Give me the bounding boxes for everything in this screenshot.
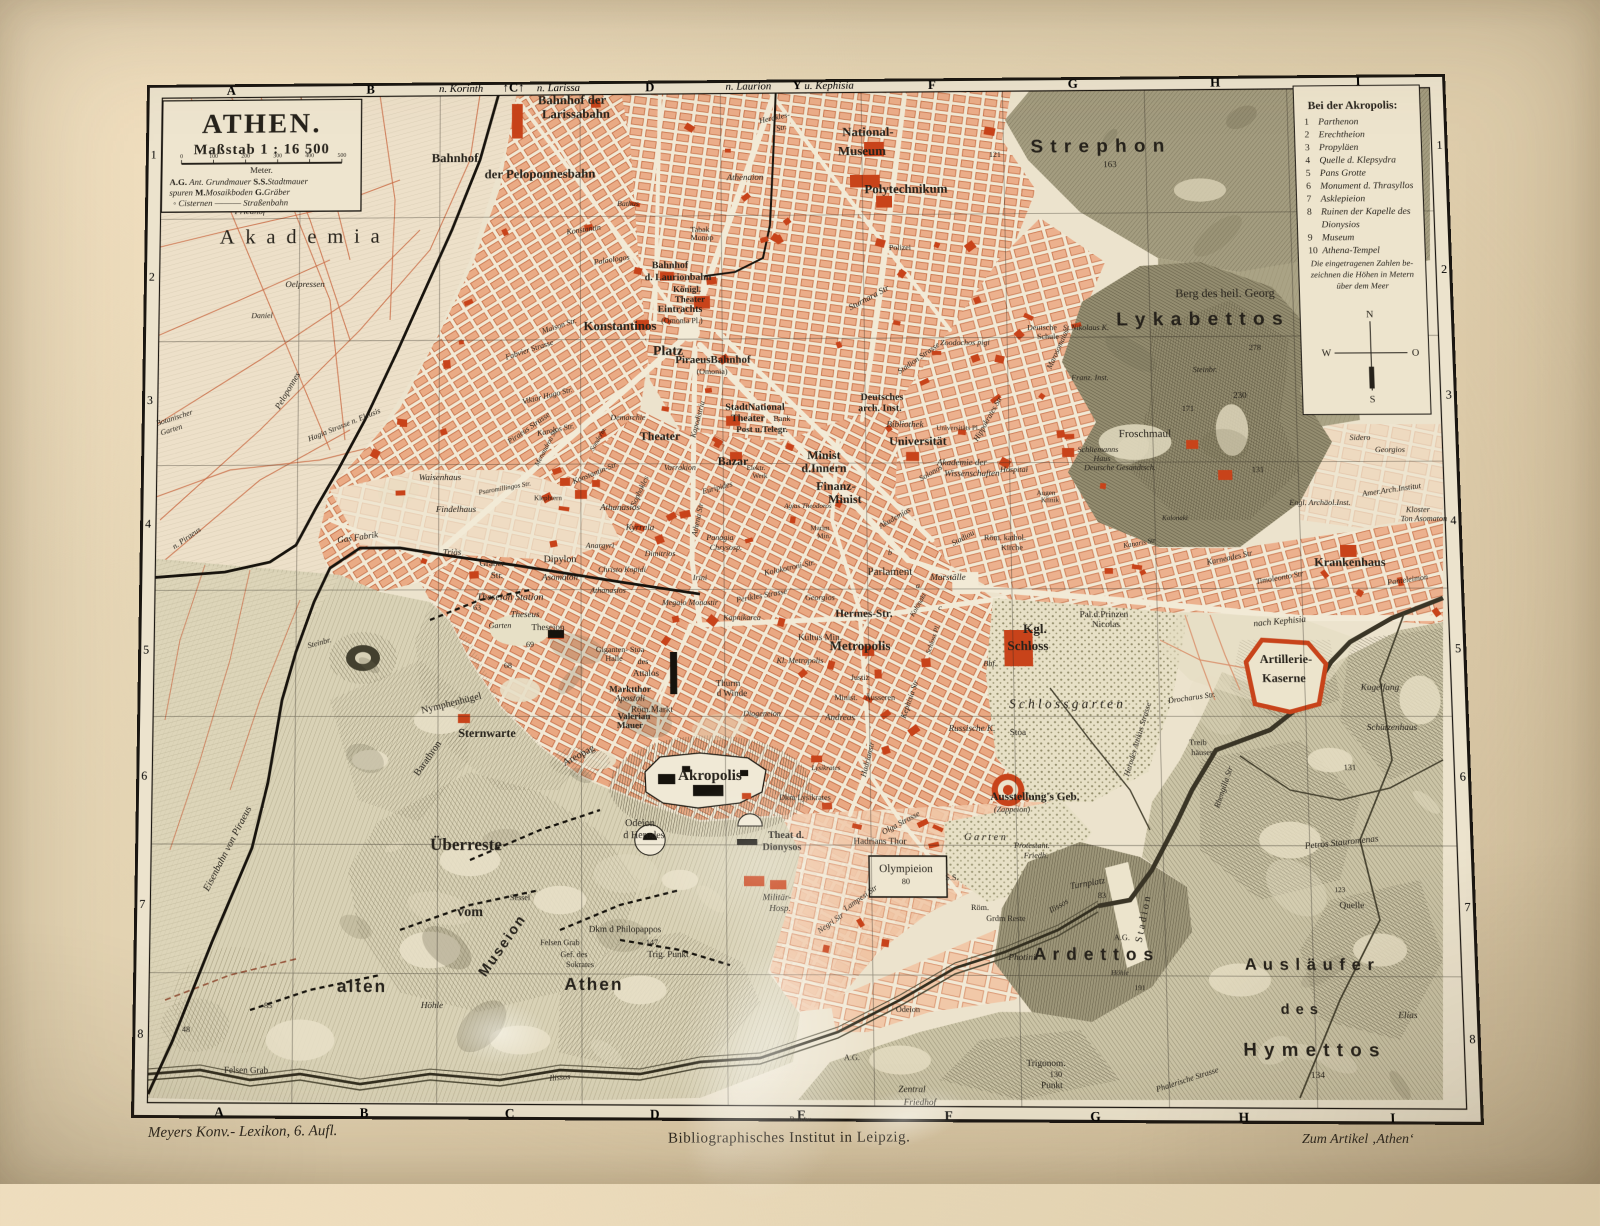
svg-text:171: 171	[1182, 404, 1195, 413]
svg-text:H y m e t t o s: H y m e t t o s	[1243, 1038, 1381, 1060]
svg-text:Pal.d.Prinzen: Pal.d.Prinzen	[1079, 609, 1129, 620]
svg-text:Anargyri: Anargyri	[585, 541, 615, 550]
svg-text:10: 10	[1308, 245, 1318, 255]
svg-text:St.Nikolaus K.: St.Nikolaus K.	[1063, 323, 1109, 332]
svg-text:5: 5	[1306, 168, 1312, 178]
svg-text:Photini: Photini	[1007, 951, 1036, 962]
svg-text:Trig. Punkt: Trig. Punkt	[647, 948, 689, 959]
svg-text:Deutsche: Deutsche	[1027, 323, 1058, 332]
svg-text:Quelle d. Klepsydra: Quelle d. Klepsydra	[1319, 154, 1396, 165]
svg-text:Schützenhaus: Schützenhaus	[1367, 721, 1418, 732]
svg-text:S t r e p h o n: S t r e p h o n	[1030, 135, 1165, 156]
svg-text:alten: alten	[337, 977, 387, 996]
svg-text:Christo Kopidi: Christo Kopidi	[598, 565, 646, 574]
svg-text:d.Innern: d.Innern	[801, 463, 847, 476]
svg-text:5: 5	[143, 644, 149, 656]
svg-text:Klephtern: Klephtern	[534, 495, 562, 502]
svg-text:Franz. Inst.: Franz. Inst.	[1070, 373, 1109, 382]
svg-text:(Omonia): (Omonia)	[697, 367, 728, 376]
svg-text:Findelhaus: Findelhaus	[435, 504, 477, 514]
svg-text:häuser: häuser	[1191, 748, 1213, 758]
svg-text:Engl. Archäol.Inst.: Engl. Archäol.Inst.	[1288, 498, 1351, 508]
svg-text:Bibliothek: Bibliothek	[886, 419, 923, 429]
svg-text:Bathus: Bathus	[617, 199, 639, 208]
svg-text:200: 200	[241, 154, 250, 160]
svg-text:0: 0	[180, 154, 183, 160]
svg-text:Russische K.: Russische K.	[947, 723, 995, 734]
svg-text:arch. Inst.: arch. Inst.	[858, 403, 902, 415]
svg-text:Überreste: Überreste	[430, 834, 502, 854]
svg-text:Minist: Minist	[828, 494, 862, 507]
svg-text:Apostoli: Apostoli	[614, 693, 646, 704]
svg-text:(Zappeion): (Zappeion)	[994, 805, 1031, 815]
svg-text:Röm. kathol.: Röm. kathol.	[984, 533, 1026, 542]
svg-text:Höhle: Höhle	[1110, 970, 1129, 978]
svg-text:Nicolas: Nicolas	[1092, 619, 1121, 630]
svg-text:n. Laurion: n. Laurion	[725, 81, 771, 92]
svg-text:Krankenhaus: Krankenhaus	[1314, 556, 1386, 569]
svg-text:Polizei: Polizei	[889, 243, 911, 252]
svg-text:131: 131	[1252, 465, 1265, 474]
svg-text:Daniel: Daniel	[250, 311, 272, 320]
svg-text:Dionysios: Dionysios	[1320, 219, 1360, 229]
svg-text:Sokrates: Sokrates	[566, 960, 594, 970]
svg-text:Museum: Museum	[838, 144, 887, 158]
svg-text:Universitäts Pl.: Universitäts Pl.	[936, 425, 980, 432]
svg-text:Lysikrates: Lysikrates	[810, 765, 840, 772]
svg-text:Parthenon: Parthenon	[1317, 116, 1359, 126]
svg-text:Pulver: Pulver	[788, 1114, 811, 1124]
svg-text:Hospital: Hospital	[999, 465, 1028, 474]
svg-text:Waisenhaus: Waisenhaus	[419, 472, 462, 482]
svg-text:Höhle: Höhle	[420, 999, 444, 1010]
svg-text:Megalo Monastir: Megalo Monastir	[661, 598, 718, 607]
svg-text:131: 131	[1344, 763, 1357, 773]
svg-text:1: 1	[151, 149, 157, 161]
svg-text:Garten: Garten	[489, 621, 512, 630]
svg-text:68: 68	[504, 661, 512, 670]
svg-text:D: D	[650, 1107, 660, 1122]
svg-text:Propyläen: Propyläen	[1318, 142, 1359, 152]
svg-text:Georgios: Georgios	[805, 593, 835, 602]
svg-text:2: 2	[1441, 264, 1448, 276]
svg-text:Militär-: Militär-	[761, 891, 791, 902]
svg-text:48: 48	[182, 1024, 190, 1034]
svg-text:Str.: Str.	[491, 570, 503, 580]
svg-text:Stoa: Stoa	[1010, 727, 1027, 738]
svg-text:Trigonom.: Trigonom.	[1026, 1057, 1065, 1068]
svg-text:500: 500	[337, 153, 346, 159]
svg-text:vom: vom	[457, 903, 483, 919]
svg-text:spuren M.Mosaikboden G.Gräber: spuren M.Mosaikboden G.Gräber	[169, 187, 290, 198]
svg-text:121: 121	[989, 150, 1001, 159]
svg-text:b: b	[888, 548, 892, 557]
svg-text:◦ Cisternen ——— Straßenbahn: ◦ Cisternen ——— Straßenbahn	[173, 197, 288, 208]
svg-text:Kirche: Kirche	[1001, 543, 1024, 552]
svg-text:6: 6	[1460, 771, 1467, 784]
svg-text:H: H	[1238, 1110, 1249, 1125]
svg-text:Ton Asomaton: Ton Asomaton	[1401, 514, 1448, 524]
svg-text:Wissenschaften: Wissenschaften	[944, 468, 999, 479]
svg-text:ATHEN.: ATHEN.	[202, 108, 322, 140]
svg-text:Varrakion: Varrakion	[664, 463, 696, 472]
svg-text:6: 6	[1306, 181, 1312, 191]
svg-text:A.G.: A.G.	[1114, 932, 1130, 942]
svg-text:Panagia: Panagia	[705, 533, 733, 542]
svg-text:Marställe: Marställe	[929, 572, 966, 583]
svg-text:2: 2	[1304, 129, 1310, 139]
svg-text:National-: National-	[842, 125, 894, 139]
svg-text:Agias Theodoros: Agias Theodoros	[783, 503, 832, 510]
svg-text:Polytechnikum: Polytechnikum	[864, 182, 948, 197]
svg-text:A: A	[214, 1105, 224, 1120]
svg-text:Schliemanns: Schliemanns	[1077, 445, 1118, 454]
svg-text:u. Kephisia: u. Kephisia	[804, 81, 854, 92]
svg-text:Universität: Universität	[889, 436, 947, 449]
svg-text:Felsen Grab: Felsen Grab	[224, 1064, 268, 1075]
svg-text:I: I	[1390, 1110, 1396, 1125]
svg-text:Museum: Museum	[1321, 232, 1355, 242]
svg-text:F: F	[928, 78, 936, 92]
svg-text:Bank: Bank	[773, 414, 790, 423]
svg-text:H: H	[1210, 75, 1221, 89]
svg-text:4: 4	[145, 518, 151, 530]
svg-text:A.G. Ant. Grundmauer S.S.Stadt: A.G. Ant. Grundmauer S.S.Stadtmauer	[169, 176, 308, 187]
svg-text:Akademie der: Akademie der	[936, 457, 988, 468]
svg-text:Schloss: Schloss	[1007, 638, 1048, 653]
svg-text:7: 7	[1306, 194, 1312, 204]
svg-text:Sternwarte: Sternwarte	[458, 728, 516, 741]
svg-text:Deutsches: Deutsches	[860, 392, 903, 403]
svg-text:Friedh.: Friedh.	[1023, 851, 1049, 861]
svg-text:Mauer: Mauer	[617, 720, 643, 731]
svg-text:Zentral: Zentral	[898, 1083, 926, 1094]
svg-text:Schule: Schule	[1037, 332, 1060, 341]
svg-text:↑C↑: ↑C↑	[503, 80, 525, 94]
svg-text:1: 1	[1436, 140, 1443, 152]
svg-text:Steinbr.: Steinbr.	[1193, 365, 1218, 374]
svg-text:Minist: Minist	[807, 450, 841, 463]
svg-text:Athena-Tempel: Athena-Tempel	[1321, 245, 1380, 256]
svg-text:C: C	[505, 1106, 515, 1121]
svg-text:Justiz: Justiz	[851, 673, 870, 682]
svg-text:zeichnen die Höhen in Metern: zeichnen die Höhen in Metern	[1310, 270, 1414, 280]
svg-text:Kultus Min.: Kultus Min.	[798, 632, 842, 643]
svg-text:69: 69	[526, 640, 534, 649]
svg-text:6: 6	[141, 770, 147, 783]
svg-text:Bhf.: Bhf.	[983, 659, 997, 668]
svg-text:Bazar: Bazar	[718, 456, 749, 468]
svg-text:Demarchie: Demarchie	[609, 413, 646, 422]
svg-text:123: 123	[1334, 887, 1346, 895]
svg-text:7: 7	[139, 898, 145, 911]
svg-text:Akademia: Akademia	[220, 225, 391, 248]
svg-text:G: G	[1090, 1109, 1101, 1124]
svg-text:a: a	[916, 581, 920, 590]
svg-text:A.G.: A.G.	[844, 1052, 860, 1062]
svg-text:Königl.: Königl.	[673, 284, 701, 294]
svg-text:Odeion: Odeion	[625, 818, 655, 830]
svg-text:O: O	[1412, 347, 1420, 358]
svg-text:Monument d. Thrasyllos: Monument d. Thrasyllos	[1319, 180, 1414, 191]
svg-text:Parlament: Parlament	[867, 567, 912, 579]
svg-text:1: 1	[1304, 117, 1309, 127]
svg-text:Meter.: Meter.	[250, 165, 273, 175]
svg-text:A r d e t t o s: A r d e t t o s	[1033, 945, 1154, 965]
svg-text:Sidero: Sidero	[1349, 433, 1370, 442]
svg-text:Froschmaul: Froschmaul	[1119, 429, 1172, 441]
svg-text:Hadrians Thor: Hadrians Thor	[853, 835, 906, 846]
svg-text:Konstantinos: Konstantinos	[583, 319, 656, 334]
svg-text:Bahnhof: Bahnhof	[432, 151, 480, 165]
svg-text:Marim: Marim	[810, 525, 830, 532]
svg-text:Elektr.: Elektr.	[747, 465, 766, 472]
svg-text:Theater: Theater	[675, 294, 705, 304]
svg-text:(Omonia Pl.): (Omonia Pl.)	[661, 316, 703, 325]
svg-text:Triàs: Triàs	[443, 547, 462, 557]
svg-text:Theat d.: Theat d.	[768, 829, 804, 841]
svg-text:Kgl.: Kgl.	[1023, 621, 1047, 636]
svg-text:Treib: Treib	[1189, 738, 1207, 748]
svg-text:2: 2	[149, 272, 155, 284]
svg-text:134: 134	[1311, 1069, 1326, 1080]
svg-text:Berg des heil. Georg: Berg des heil. Georg	[1175, 287, 1275, 300]
svg-text:Y: Y	[792, 78, 801, 92]
svg-text:Akropolis: Akropolis	[678, 767, 742, 784]
svg-text:3: 3	[147, 395, 153, 407]
svg-text:Finanz-: Finanz-	[816, 481, 856, 494]
svg-text:F: F	[944, 1108, 952, 1123]
svg-text:Kugelfang: Kugelfang	[1359, 682, 1400, 693]
svg-text:d. Laurionbahn: d. Laurionbahn	[645, 272, 712, 284]
svg-text:Grdm Reste: Grdm Reste	[986, 913, 1026, 923]
svg-text:4: 4	[1450, 515, 1457, 528]
svg-text:Dkm Lysikrates: Dkm Lysikrates	[779, 793, 831, 803]
svg-text:Zoodochos pigi: Zoodochos pigi	[940, 338, 990, 347]
svg-text:Dimitrios: Dimitrios	[644, 549, 676, 558]
svg-text:Athenaion: Athenaion	[726, 172, 764, 182]
svg-text:Andreas: Andreas	[824, 712, 856, 723]
svg-text:Asklepieion: Asklepieion	[1319, 193, 1365, 203]
svg-text:Thurm: Thurm	[716, 678, 741, 689]
svg-text:Klinik: Klinik	[1041, 497, 1060, 504]
svg-text:Ilissos: Ilissos	[548, 1072, 571, 1084]
svg-text:7: 7	[1464, 901, 1471, 914]
svg-text:G a r t e n: G a r t e n	[964, 831, 1006, 843]
svg-text:d e s: d e s	[1280, 1001, 1319, 1017]
svg-text:Theater: Theater	[640, 431, 681, 443]
svg-text:S c h l o s s g a r t e n: S c h l o s s g a r t e n	[1009, 696, 1123, 711]
svg-text:3: 3	[1305, 142, 1311, 152]
svg-text:278: 278	[1249, 343, 1262, 352]
svg-text:Kyrrala: Kyrrala	[625, 522, 655, 532]
svg-text:100: 100	[209, 154, 218, 160]
svg-text:A: A	[227, 84, 236, 98]
svg-text:Dipylon: Dipylon	[544, 554, 577, 565]
svg-text:des: des	[638, 657, 649, 666]
svg-text:Dkm d Philopappos: Dkm d Philopappos	[589, 923, 662, 934]
svg-text:S.S.: S.S.	[945, 873, 958, 883]
svg-text:Punkt: Punkt	[1041, 1079, 1064, 1090]
svg-text:Odeion: Odeion	[896, 1004, 920, 1014]
svg-text:147: 147	[646, 937, 658, 947]
svg-text:80: 80	[902, 877, 910, 887]
svg-text:163: 163	[1103, 159, 1117, 169]
svg-text:Röm.: Röm.	[971, 903, 989, 913]
svg-text:5: 5	[1455, 643, 1462, 656]
svg-text:Magazin: Magazin	[787, 1124, 817, 1125]
svg-text:D: D	[645, 80, 654, 94]
svg-text:Sessel: Sessel	[510, 893, 530, 903]
svg-text:Deutsche Gesandtsch.: Deutsche Gesandtsch.	[1083, 463, 1156, 473]
svg-text:Felsen Grab: Felsen Grab	[540, 938, 580, 948]
svg-text:Georgios: Georgios	[1375, 445, 1405, 454]
svg-text:W: W	[1322, 348, 1333, 359]
svg-text:Friedhof: Friedhof	[903, 1096, 938, 1107]
svg-text:Die eingetragenen Zahlen be-: Die eingetragenen Zahlen be-	[1310, 258, 1414, 268]
svg-text:Werk: Werk	[753, 473, 769, 480]
svg-text:Attalos: Attalos	[633, 668, 660, 678]
svg-text:der Peloponnesbahn: der Peloponnesbahn	[485, 166, 596, 181]
svg-text:Erechtheion: Erechtheion	[1317, 129, 1365, 139]
svg-text:Kaserne: Kaserne	[1262, 673, 1306, 686]
svg-text:Kapnikarea: Kapnikarea	[722, 613, 761, 622]
svg-text:63: 63	[473, 603, 481, 612]
svg-text:Ruinen der Kapelle des: Ruinen der Kapelle des	[1320, 206, 1411, 217]
svg-text:Bahnhof der: Bahnhof der	[538, 93, 607, 108]
svg-text:Pans Grotte: Pans Grotte	[1319, 167, 1366, 178]
svg-text:Kolonaki: Kolonaki	[1161, 515, 1188, 522]
svg-text:Theater: Theater	[731, 413, 766, 424]
svg-text:Theseion: Theseion	[531, 622, 565, 632]
svg-text:300: 300	[273, 153, 282, 159]
svg-text:Theseus: Theseus	[511, 609, 541, 619]
svg-text:Halle: Halle	[605, 654, 623, 663]
svg-text:StadtNational: StadtNational	[725, 402, 785, 414]
svg-text:Minist.: Minist.	[834, 693, 857, 702]
svg-text:A u s l ä u f e r: A u s l ä u f e r	[1245, 956, 1376, 975]
svg-text:85: 85	[264, 1001, 272, 1011]
svg-text:B: B	[366, 83, 375, 97]
svg-text:191: 191	[1135, 985, 1146, 993]
svg-text:Gef. des: Gef. des	[560, 949, 587, 959]
svg-text:Min.: Min.	[817, 533, 831, 540]
svg-text:PiraeusBahnhof: PiraeusBahnhof	[675, 355, 751, 367]
svg-text:Post u.Telegr.: Post u.Telegr.	[736, 424, 788, 434]
svg-text:Äusseren: Äusseren	[865, 693, 895, 702]
svg-text:130: 130	[1050, 1069, 1063, 1079]
svg-text:Quelle: Quelle	[1339, 899, 1364, 910]
svg-text:G: G	[1068, 77, 1079, 91]
svg-text:Protestant.: Protestant.	[1013, 840, 1050, 850]
svg-text:Kl. Metropolis: Kl. Metropolis	[775, 656, 823, 665]
svg-text:83: 83	[1098, 890, 1107, 900]
svg-text:Ausstellung's Geb.: Ausstellung's Geb.	[990, 791, 1080, 803]
svg-text:Hermes-Str.: Hermes-Str.	[835, 609, 893, 621]
svg-text:3: 3	[1446, 389, 1453, 401]
svg-text:n. Korinth: n. Korinth	[439, 84, 483, 95]
svg-text:Gräber: Gräber	[480, 558, 505, 568]
svg-text:400: 400	[305, 153, 314, 159]
svg-text:Bahnhof: Bahnhof	[652, 260, 689, 271]
svg-text:Haus: Haus	[1092, 454, 1110, 463]
svg-text:B: B	[360, 1105, 369, 1120]
svg-text:Irini: Irini	[692, 573, 707, 582]
svg-text:Artillerie-: Artillerie-	[1260, 653, 1313, 666]
svg-text:Dionysos: Dionysos	[762, 842, 801, 854]
svg-text:Bei der Akropolis:: Bei der Akropolis:	[1307, 99, 1397, 112]
svg-text:4: 4	[1305, 155, 1311, 165]
svg-text:Chrysosp.: Chrysosp.	[710, 543, 742, 552]
svg-text:8: 8	[137, 1028, 144, 1041]
svg-text:Hosp.: Hosp.	[768, 902, 791, 913]
svg-text:Larissabahn: Larissabahn	[542, 107, 610, 122]
svg-text:Asomaton: Asomaton	[541, 572, 578, 582]
svg-text:über dem Meer: über dem Meer	[1336, 281, 1389, 291]
svg-text:Athanasios: Athanasios	[589, 586, 626, 595]
svg-text:Theseion Station: Theseion Station	[477, 592, 544, 604]
svg-text:Athen: Athen	[564, 975, 623, 995]
svg-text:8: 8	[1469, 1033, 1476, 1046]
svg-text:d Herodes: d Herodes	[623, 830, 665, 842]
svg-text:L y k a b e t t o s: L y k a b e t t o s	[1116, 308, 1284, 329]
svg-text:Oelpressen: Oelpressen	[285, 279, 324, 289]
svg-text:S: S	[1370, 394, 1376, 405]
svg-text:230: 230	[1233, 390, 1247, 400]
svg-text:Olympieion: Olympieion	[879, 863, 934, 875]
svg-text:8: 8	[1307, 206, 1313, 216]
svg-text:Eintrachts: Eintrachts	[658, 304, 703, 315]
svg-text:9: 9	[1308, 232, 1314, 242]
svg-text:Elias: Elias	[1397, 1009, 1418, 1020]
svg-text:Monop: Monop	[691, 233, 714, 242]
svg-text:d Winde: d Winde	[717, 688, 748, 699]
svg-text:Diogeneion: Diogeneion	[742, 709, 781, 718]
svg-text:N: N	[1366, 309, 1374, 320]
